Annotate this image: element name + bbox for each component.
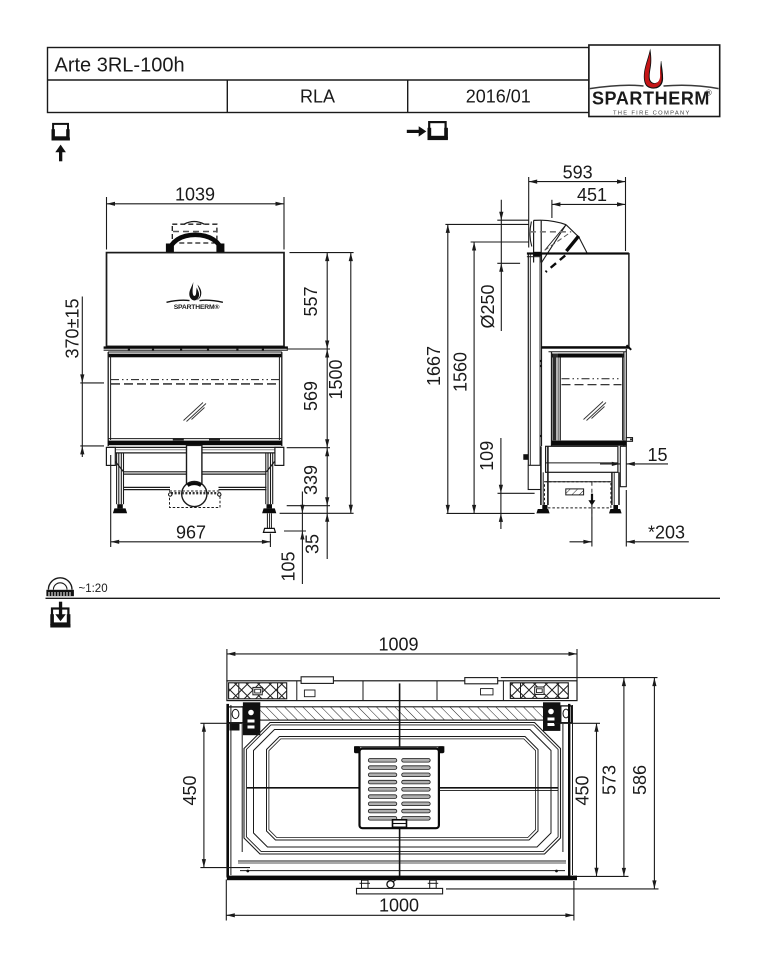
svg-text:SPARTHERM: SPARTHERM	[592, 88, 710, 108]
svg-text:1039: 1039	[175, 185, 215, 205]
svg-text:967: 967	[176, 523, 206, 543]
svg-text:586: 586	[630, 765, 650, 795]
svg-text:450: 450	[180, 775, 200, 805]
svg-text:Arte 3RL-100h: Arte 3RL-100h	[55, 55, 185, 77]
svg-text:105: 105	[279, 551, 299, 581]
svg-text:RLA: RLA	[300, 87, 335, 107]
svg-text:35: 35	[303, 534, 323, 554]
svg-text:®: ®	[706, 89, 712, 98]
svg-text:1000: 1000	[379, 896, 419, 916]
svg-text:1009: 1009	[378, 635, 418, 655]
svg-text:1667: 1667	[424, 346, 444, 386]
svg-text:109: 109	[477, 441, 497, 471]
svg-text:2016/01: 2016/01	[466, 87, 531, 107]
svg-text:450: 450	[573, 775, 593, 805]
svg-text:569: 569	[301, 381, 321, 411]
svg-text:451: 451	[577, 185, 607, 205]
svg-text:Ø250: Ø250	[478, 284, 498, 328]
svg-text:1500: 1500	[326, 359, 346, 399]
svg-text:*203: *203	[648, 523, 685, 543]
svg-text:339: 339	[301, 465, 321, 495]
svg-text:573: 573	[600, 765, 620, 795]
svg-text:593: 593	[563, 162, 593, 182]
svg-text:SPARTHERM®: SPARTHERM®	[174, 303, 220, 311]
svg-text:1560: 1560	[450, 352, 470, 392]
svg-text:370±15: 370±15	[63, 299, 83, 359]
svg-text:~1:20: ~1:20	[79, 583, 108, 595]
svg-text:THE FIRE COMPANY: THE FIRE COMPANY	[613, 110, 691, 116]
svg-text:15: 15	[647, 445, 667, 465]
svg-text:557: 557	[301, 286, 321, 316]
